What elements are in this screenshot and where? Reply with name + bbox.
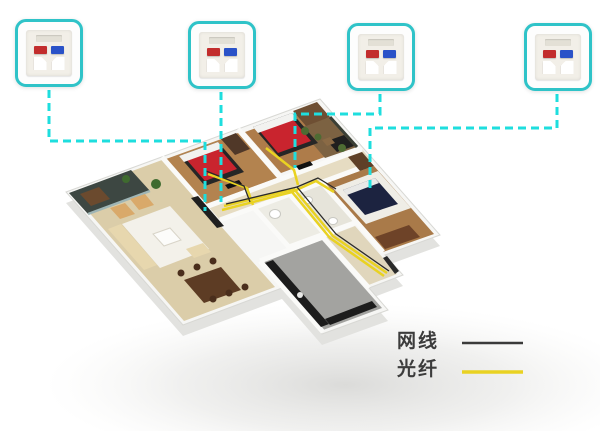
infographic-canvas: 网线 光纤 xyxy=(0,0,600,431)
connector-socket-4 xyxy=(370,94,557,190)
rj45-jack-icon xyxy=(366,61,379,74)
socket-plate xyxy=(535,34,581,80)
wall-socket-icon xyxy=(15,19,83,87)
rj45-jack-icon xyxy=(52,57,65,70)
blue-port-tag xyxy=(51,46,64,54)
rj45-jack-icon xyxy=(384,61,397,74)
rj45-jack-icon xyxy=(561,61,574,74)
plant xyxy=(151,179,161,189)
blue-port-tag xyxy=(560,50,573,58)
wall-socket-icon xyxy=(347,23,415,91)
blue-port-tag xyxy=(383,50,396,58)
socket-jacks xyxy=(207,59,238,72)
socket-plate xyxy=(26,30,72,76)
rj45-jack-icon xyxy=(543,61,556,74)
red-port-tag xyxy=(34,46,47,54)
socket-plate xyxy=(358,34,404,80)
rj45-jack-icon xyxy=(225,59,238,72)
socket-port-tags xyxy=(34,46,64,54)
socket-jacks xyxy=(366,61,397,74)
wall-socket-icon xyxy=(524,23,592,91)
socket-plate xyxy=(199,32,245,78)
red-port-tag xyxy=(207,48,220,56)
socket-port-tags xyxy=(366,50,396,58)
socket-jacks xyxy=(34,57,65,70)
socket-label-strip xyxy=(36,35,62,42)
red-port-tag xyxy=(366,50,379,58)
plant xyxy=(122,175,130,183)
floorplan-illustration xyxy=(0,0,600,431)
socket-label-strip xyxy=(209,37,235,44)
socket-label-strip xyxy=(368,39,394,46)
rj45-jack-icon xyxy=(34,57,47,70)
legend-label-lan: 网线 xyxy=(397,331,439,351)
socket-jacks xyxy=(543,61,574,74)
legend-label-fiber: 光纤 xyxy=(397,359,439,379)
socket-port-tags xyxy=(207,48,237,56)
kitchen-sink xyxy=(297,292,303,298)
blue-port-tag xyxy=(224,48,237,56)
socket-label-strip xyxy=(545,39,571,46)
red-port-tag xyxy=(543,50,556,58)
socket-port-tags xyxy=(543,50,573,58)
rj45-jack-icon xyxy=(207,59,220,72)
wall-socket-icon xyxy=(188,21,256,89)
